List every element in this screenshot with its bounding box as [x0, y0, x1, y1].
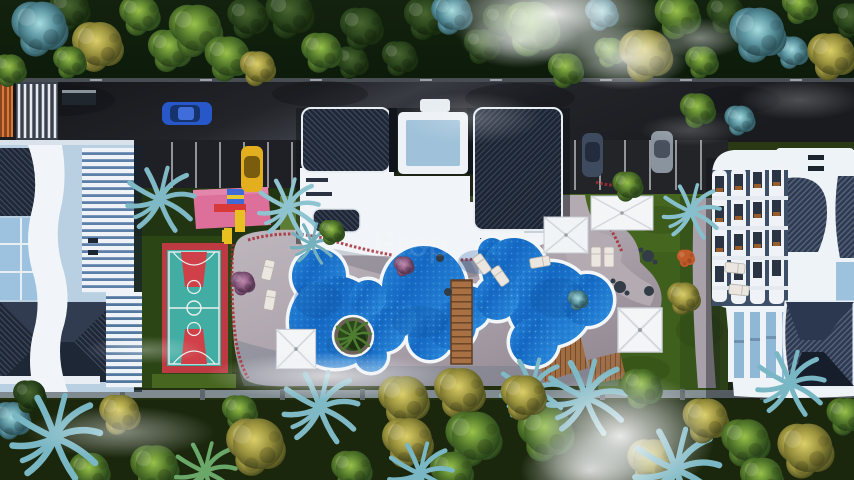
svg-text:Prop: Prop — [372, 223, 448, 264]
